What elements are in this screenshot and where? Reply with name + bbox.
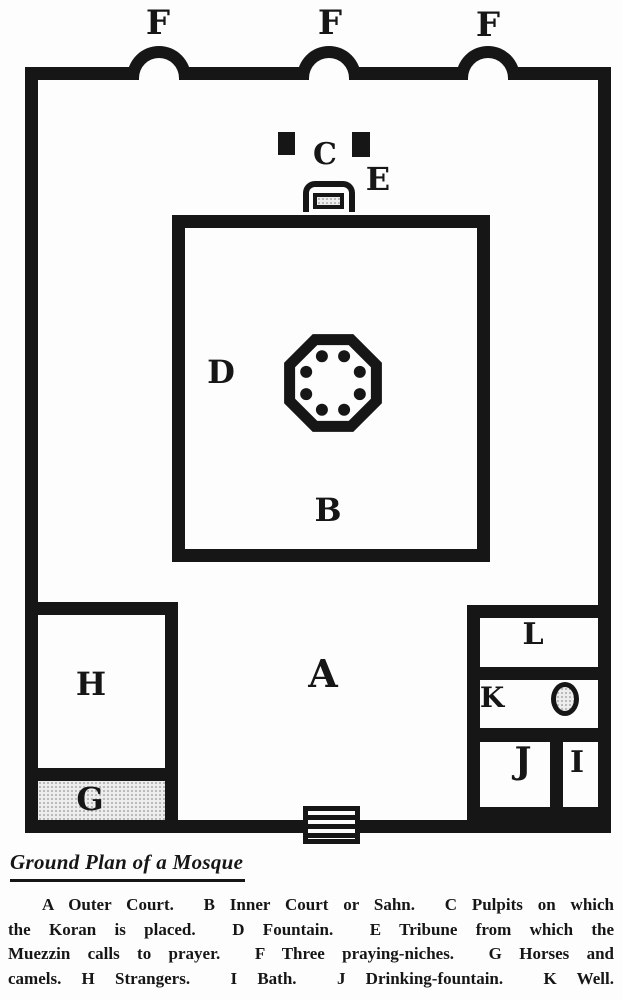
- legend-line-2: the Koran is placed. D Fountain. E Tribu…: [8, 918, 614, 943]
- scanned-book-page: { "caption": "Ground Plan of a Mosque", …: [0, 0, 623, 1000]
- entrance-gate: [303, 806, 360, 844]
- divider-k-ji: [480, 728, 598, 742]
- divider-l-k: [480, 667, 598, 680]
- well-opening: [551, 682, 579, 716]
- label-niche-f-3: F: [476, 8, 500, 42]
- fountain-octagon-drawing: [278, 328, 388, 438]
- legend-line-4: camels. H Strangers. I Bath. J Drinking-…: [8, 967, 614, 992]
- figure-caption: Ground Plan of a Mosque: [10, 850, 245, 882]
- label-tribune-e: E: [366, 163, 390, 195]
- praying-niche-3: [456, 46, 520, 79]
- label-outer-court-a: A: [308, 655, 337, 693]
- tribune-platform: [313, 193, 344, 209]
- label-niche-f-1: F: [146, 6, 170, 40]
- label-strangers-h: H: [76, 668, 106, 700]
- legend-line-1: A Outer Court. B Inner Court or Sahn. C …: [8, 893, 614, 918]
- pulpit-left-block: [278, 132, 295, 155]
- label-inner-court-b: B: [314, 494, 341, 526]
- fountain-octagon: [278, 328, 388, 438]
- mosque-ground-plan: F F F C E B D A H G L K J I: [0, 0, 623, 845]
- praying-niche-1: [127, 46, 191, 79]
- label-fountain-d: D: [207, 356, 235, 388]
- label-niche-f-2: F: [318, 6, 342, 40]
- label-drinking-fountain-j: J: [514, 743, 531, 779]
- divider-j-i: [550, 742, 563, 807]
- label-pulpits-c: C: [313, 140, 337, 170]
- label-bath-i: I: [570, 748, 584, 778]
- label-room-l: L: [522, 620, 543, 650]
- label-stable-g: G: [76, 783, 103, 815]
- pulpit-right-block: [352, 132, 370, 157]
- figure-legend: A Outer Court. B Inner Court or Sahn. C …: [8, 893, 614, 991]
- praying-niche-2: [297, 46, 361, 79]
- legend-line-3: Muezzin calls to prayer. F Three praying…: [8, 942, 614, 967]
- label-well-k: K: [480, 684, 504, 712]
